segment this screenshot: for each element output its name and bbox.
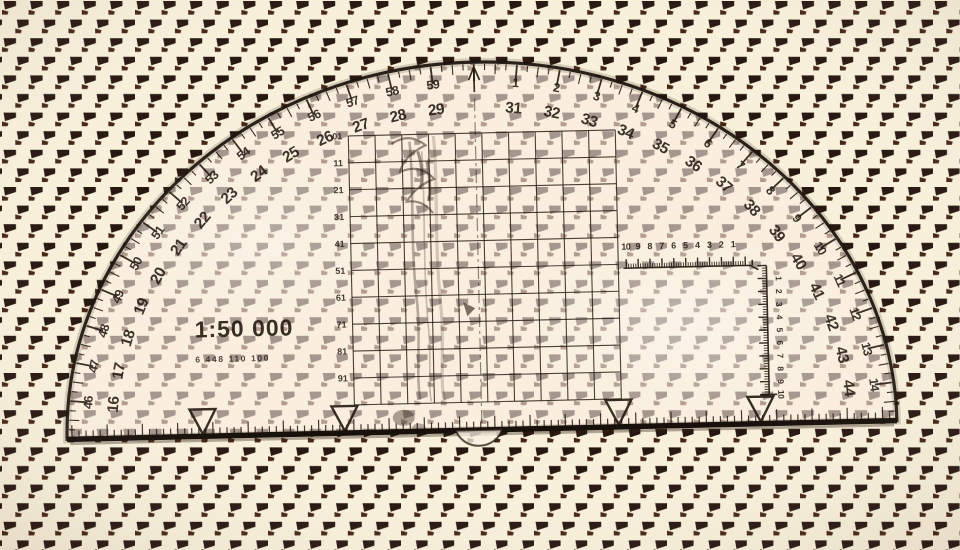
- photo-canvas: 4616471748184919502051215222532354245525…: [0, 0, 960, 550]
- photo-vignette: [0, 0, 960, 550]
- protractor-photo: 4616471748184919502051215222532354245525…: [0, 0, 960, 550]
